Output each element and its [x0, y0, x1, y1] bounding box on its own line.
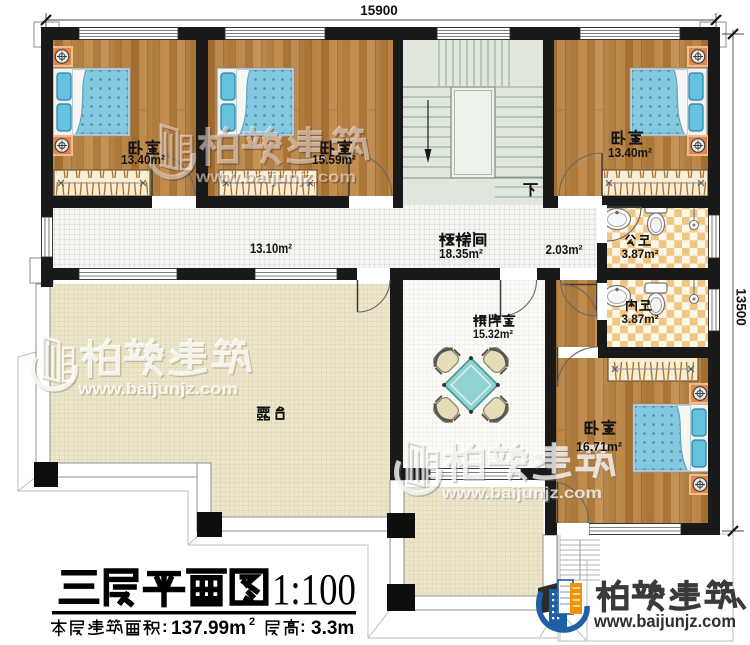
svg-text:2: 2 — [249, 616, 255, 628]
svg-text:15.59m²: 15.59m² — [312, 153, 356, 167]
svg-text:137.99m: 137.99m — [171, 618, 246, 639]
svg-text:16.71m²: 16.71m² — [576, 440, 622, 454]
svg-text:13500: 13500 — [734, 288, 749, 326]
svg-text:3.87m²: 3.87m² — [622, 314, 659, 326]
svg-text::: : — [162, 617, 168, 636]
svg-text:3.3m: 3.3m — [311, 618, 354, 639]
svg-text:13.40m²: 13.40m² — [121, 153, 165, 167]
svg-text:15900: 15900 — [360, 3, 398, 18]
svg-text:1:100: 1:100 — [272, 565, 356, 614]
svg-text:2.03m²: 2.03m² — [546, 243, 583, 257]
svg-text:www.baijunjz.com: www.baijunjz.com — [593, 611, 736, 631]
svg-text:3.87m²: 3.87m² — [622, 249, 659, 261]
svg-text:18.35m²: 18.35m² — [439, 247, 483, 261]
svg-text:13.10m²: 13.10m² — [250, 241, 292, 256]
svg-text:13.40m²: 13.40m² — [608, 146, 652, 160]
svg-text:15.32m²: 15.32m² — [473, 329, 513, 341]
svg-text::: : — [300, 617, 306, 636]
